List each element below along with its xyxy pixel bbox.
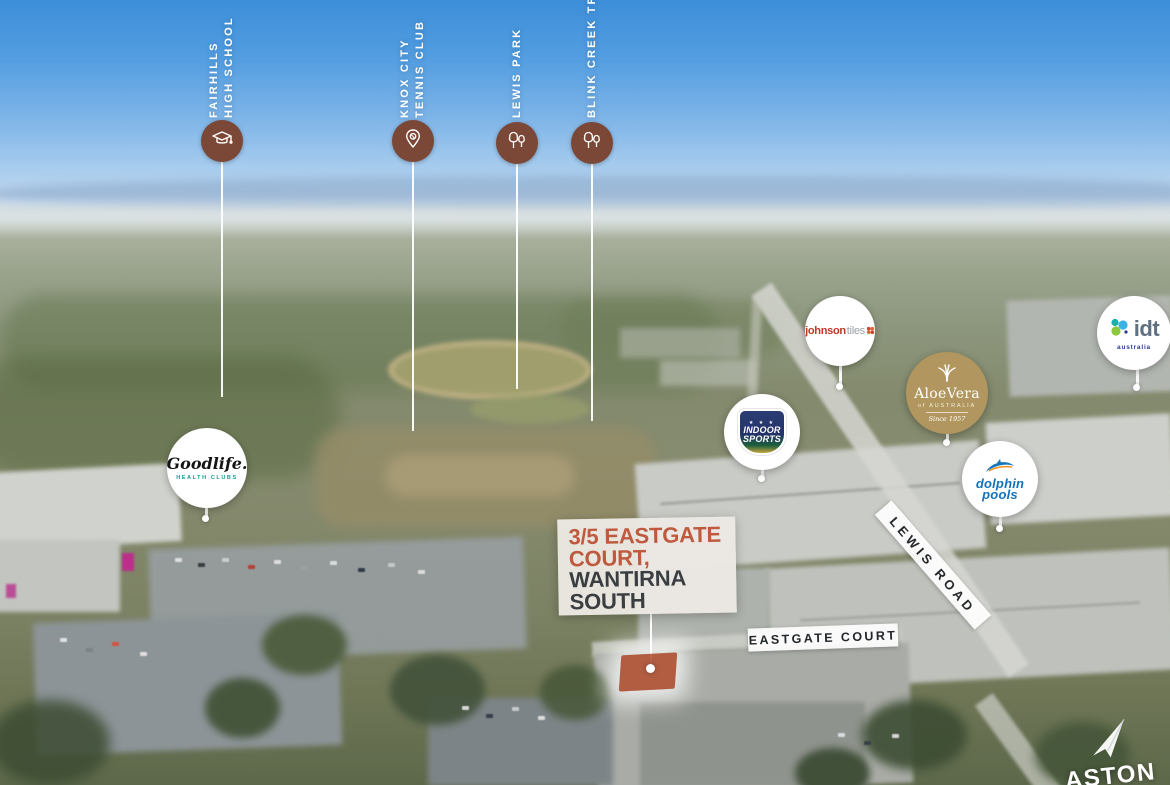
poi-label-lewis-park: LEWIS PARK (510, 28, 525, 118)
bubble-stem-dot (202, 515, 209, 522)
bubble-aloe-vera: AloeVera of AUSTRALIA Since 1957 (906, 352, 988, 434)
poi-marker-lewis-park (496, 122, 538, 164)
aerial-marketing-image: FAIRHILLSHIGH SCHOOL KNOX CITYTENNIS CLU… (0, 0, 1170, 785)
bubble-dolphin-pools: dolphin pools (962, 441, 1038, 517)
johnson-tile-petal-icon (866, 322, 875, 340)
graduation-cap-icon (210, 127, 234, 156)
divider (926, 412, 968, 413)
poi-marker-fairhills-high-school (201, 120, 243, 162)
poi-leader-line (591, 162, 593, 421)
agency-watermark: ASTON (1049, 712, 1168, 785)
idt-molecule-icon (1109, 316, 1131, 343)
bubble-stem-dot (943, 439, 950, 446)
bubble-indoor-sports: ★ ★ ★ INDOOR SPORTS (724, 394, 800, 470)
poi-label-knox-city-tennis-club: KNOX CITYTENNIS CLUB (398, 20, 428, 118)
poi-label-blink-creek-trail: BLINK CREEK TRAIL (585, 0, 600, 118)
indoor-sports-logo-line2: SPORTS (743, 435, 781, 445)
goodlife-logo-subtitle: HEALTH CLUBS (176, 475, 238, 481)
goodlife-logo: Goodlife. (167, 455, 247, 472)
bubble-stem (1136, 369, 1139, 385)
aloe-plant-icon (934, 364, 960, 387)
poi-marker-blink-creek-trail (571, 122, 613, 164)
bubble-stem (839, 364, 842, 384)
bubble-goodlife-health-clubs: Goodlife. HEALTH CLUBS (167, 428, 247, 508)
suburb-line-2: SOUTH (569, 588, 725, 612)
dolphin-pools-logo-line2: pools (982, 489, 1018, 500)
aston-wordmark: ASTON (1054, 759, 1168, 785)
property-address-label: 3/5 EASTGATE COURT, WANTIRNA SOUTH (557, 516, 737, 615)
road-label-lewis-road: LEWIS ROAD (875, 500, 991, 629)
bubble-stem-dot (1133, 384, 1140, 391)
johnson-logo-word2: tiles (847, 325, 865, 337)
bubble-johnson-tiles: johnson tiles (805, 296, 875, 366)
suburb-line-1: WANTIRNA (569, 567, 725, 591)
idt-logo: idt (1134, 318, 1159, 340)
aloe-vera-logo: AloeVera (914, 387, 980, 401)
johnson-logo: johnson (805, 325, 846, 337)
aloe-vera-logo-subtitle: of AUSTRALIA (918, 403, 976, 409)
trees-icon (580, 129, 604, 158)
map-pin-icon (401, 127, 425, 156)
poi-label-fairhills-high-school: FAIRHILLSHIGH SCHOOL (207, 16, 237, 118)
bubble-stem-dot (996, 525, 1003, 532)
aloe-vera-logo-tagline: Since 1957 (929, 415, 966, 423)
poi-leader-line (412, 160, 414, 431)
poi-leader-line (516, 162, 518, 389)
idt-logo-subtitle: australia (1117, 344, 1151, 351)
poi-leader-line (221, 160, 223, 397)
trees-icon (505, 129, 529, 158)
bubble-idt-australia: idt australia (1097, 296, 1170, 370)
dolphin-icon (983, 458, 1017, 478)
property-marker-dot (646, 664, 655, 673)
indoor-sports-shield-logo: ★ ★ ★ INDOOR SPORTS (738, 409, 786, 455)
road-label-eastgate-court: EASTGATE COURT (748, 623, 899, 651)
poi-marker-knox-city-tennis-club (392, 120, 434, 162)
bubble-stem-dot (836, 383, 843, 390)
bubble-stem-dot (758, 475, 765, 482)
